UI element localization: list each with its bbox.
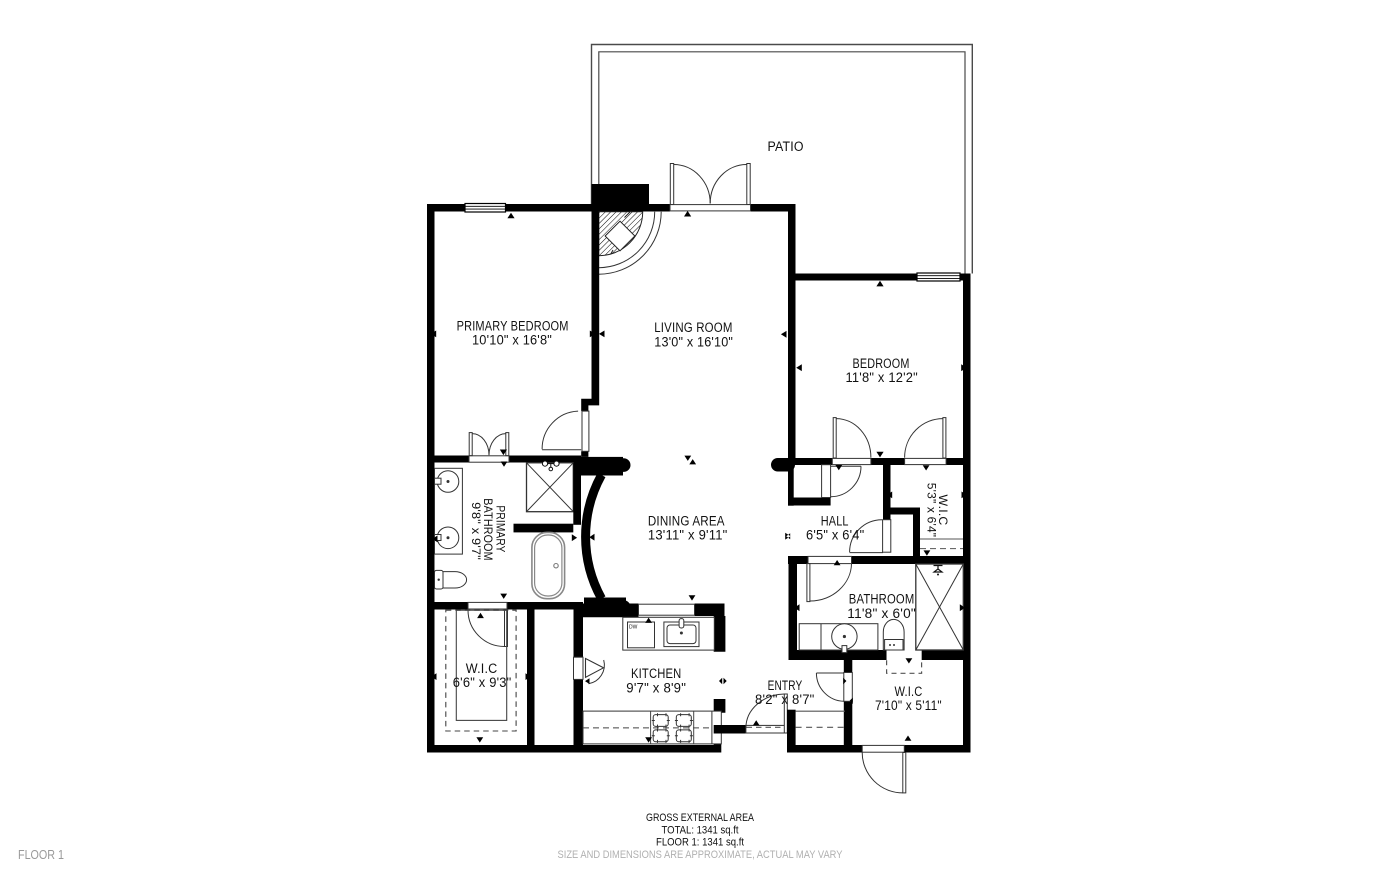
- svg-text:PATIO: PATIO: [768, 139, 804, 154]
- svg-text:6'5" x 6'4": 6'5" x 6'4": [806, 528, 864, 543]
- svg-text:HALL: HALL: [821, 513, 849, 528]
- svg-text:BATHROOM: BATHROOM: [849, 592, 915, 607]
- svg-text:GROSS EXTERNAL AREA: GROSS EXTERNAL AREA: [646, 812, 755, 824]
- svg-text:11'8" x 12'2": 11'8" x 12'2": [846, 370, 918, 385]
- svg-text:9'7" x 8'9": 9'7" x 8'9": [626, 681, 686, 696]
- svg-text:13'0" x 16'10": 13'0" x 16'10": [654, 335, 733, 350]
- svg-text:KITCHEN: KITCHEN: [631, 666, 681, 681]
- svg-text:5'3" x 6'4": 5'3" x 6'4": [925, 483, 939, 538]
- svg-text:FLOOR 1: 1341 sq.ft: FLOOR 1: 1341 sq.ft: [656, 837, 744, 849]
- svg-text:13'11" x 9'11": 13'11" x 9'11": [648, 528, 728, 543]
- svg-text:10'10" x 16'8": 10'10" x 16'8": [472, 333, 552, 348]
- svg-text:FLOOR 1: FLOOR 1: [18, 847, 64, 862]
- svg-text:DW: DW: [629, 625, 638, 631]
- svg-text:ENTRY: ENTRY: [768, 678, 803, 693]
- svg-text:LIVING ROOM: LIVING ROOM: [654, 320, 732, 335]
- svg-text:TOTAL: 1341 sq.ft: TOTAL: 1341 sq.ft: [662, 825, 739, 837]
- svg-text:SIZE AND DIMENSIONS ARE APPROX: SIZE AND DIMENSIONS ARE APPROXIMATE, ACT…: [558, 849, 844, 861]
- svg-text:11'8" x 6'0": 11'8" x 6'0": [847, 606, 916, 621]
- svg-text:PRIMARY BEDROOM: PRIMARY BEDROOM: [457, 319, 569, 334]
- svg-text:W.I.C: W.I.C: [895, 684, 923, 699]
- svg-text:W.I.C: W.I.C: [466, 661, 498, 676]
- svg-text:BEDROOM: BEDROOM: [853, 356, 910, 371]
- svg-text:DINING AREA: DINING AREA: [648, 514, 725, 529]
- svg-text:8'2" x 8'7": 8'2" x 8'7": [755, 692, 815, 707]
- svg-text:9'8" x 9'7": 9'8" x 9'7": [469, 502, 483, 560]
- svg-text:7'10" x 5'11": 7'10" x 5'11": [875, 698, 942, 713]
- svg-text:6'6" x 9'3": 6'6" x 9'3": [453, 675, 512, 690]
